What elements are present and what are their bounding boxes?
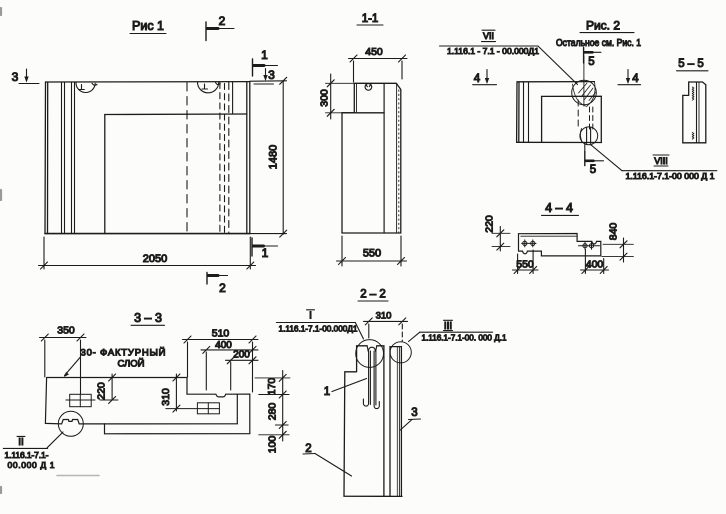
svg-text:СЛОЙ: СЛОЙ xyxy=(118,358,145,370)
svg-text:100: 100 xyxy=(267,436,279,454)
svg-text:Рис. 2: Рис. 2 xyxy=(586,19,620,33)
svg-text:200: 200 xyxy=(233,350,250,361)
svg-text:350: 350 xyxy=(57,325,75,337)
svg-text:5: 5 xyxy=(590,164,596,176)
svg-text:1.116.1-7.1-00 000 Д 1: 1.116.1-7.1-00 000 Д 1 xyxy=(626,171,715,181)
svg-text:510: 510 xyxy=(212,328,230,340)
svg-text:3: 3 xyxy=(411,407,417,419)
svg-text:3: 3 xyxy=(12,70,19,84)
svg-text:2 – 2: 2 – 2 xyxy=(360,289,386,301)
svg-text:2: 2 xyxy=(219,281,226,295)
svg-text:220: 220 xyxy=(484,215,496,233)
svg-text:220: 220 xyxy=(96,382,108,400)
svg-text:1: 1 xyxy=(324,386,330,398)
svg-text:I: I xyxy=(309,311,312,322)
svg-text:310: 310 xyxy=(376,311,392,322)
svg-text:550: 550 xyxy=(363,248,381,260)
svg-text:2: 2 xyxy=(219,14,226,28)
svg-text:1.116.1 - 7.1 - 00.000Д1: 1.116.1 - 7.1 - 00.000Д1 xyxy=(447,46,539,56)
svg-text:5: 5 xyxy=(588,56,594,68)
svg-text:1.116.1-7.1-00. 000 Д.1: 1.116.1-7.1-00. 000 Д.1 xyxy=(422,332,507,342)
svg-text:00.000 Д 1: 00.000 Д 1 xyxy=(8,460,55,470)
svg-text:310: 310 xyxy=(160,388,172,406)
svg-text:280: 280 xyxy=(267,403,279,421)
svg-text:1: 1 xyxy=(261,48,268,62)
svg-text:1: 1 xyxy=(262,246,269,260)
svg-text:30- ФАКТУРНЫЙ: 30- ФАКТУРНЫЙ xyxy=(81,347,166,359)
svg-text:4: 4 xyxy=(474,73,481,85)
svg-text:840: 840 xyxy=(608,223,620,241)
svg-text:4 – 4: 4 – 4 xyxy=(545,201,573,215)
svg-text:450: 450 xyxy=(365,46,383,58)
svg-text:170: 170 xyxy=(266,378,278,396)
svg-text:2050: 2050 xyxy=(143,253,167,265)
svg-text:3: 3 xyxy=(268,68,275,82)
svg-text:4: 4 xyxy=(632,73,639,85)
svg-text:400: 400 xyxy=(586,259,604,271)
svg-text:3 – 3: 3 – 3 xyxy=(134,311,162,325)
svg-text:1-1: 1-1 xyxy=(362,13,379,25)
svg-text:400: 400 xyxy=(215,340,232,351)
svg-text:1480: 1480 xyxy=(268,145,280,169)
svg-text:VII: VII xyxy=(483,31,494,41)
svg-text:300: 300 xyxy=(319,89,331,107)
svg-text:1.116.1-7.1-: 1.116.1-7.1- xyxy=(5,450,49,460)
svg-text:Рис 1: Рис 1 xyxy=(132,19,164,33)
svg-text:VIII: VIII xyxy=(654,156,668,166)
svg-text:550: 550 xyxy=(516,259,534,271)
svg-text:1.116.1-7.1-00.000Д1: 1.116.1-7.1-00.000Д1 xyxy=(279,323,358,333)
svg-text:5 – 5: 5 – 5 xyxy=(678,58,704,70)
svg-text:II: II xyxy=(18,437,24,448)
svg-text:Остальное см. Рис. 1: Остальное см. Рис. 1 xyxy=(556,38,641,49)
